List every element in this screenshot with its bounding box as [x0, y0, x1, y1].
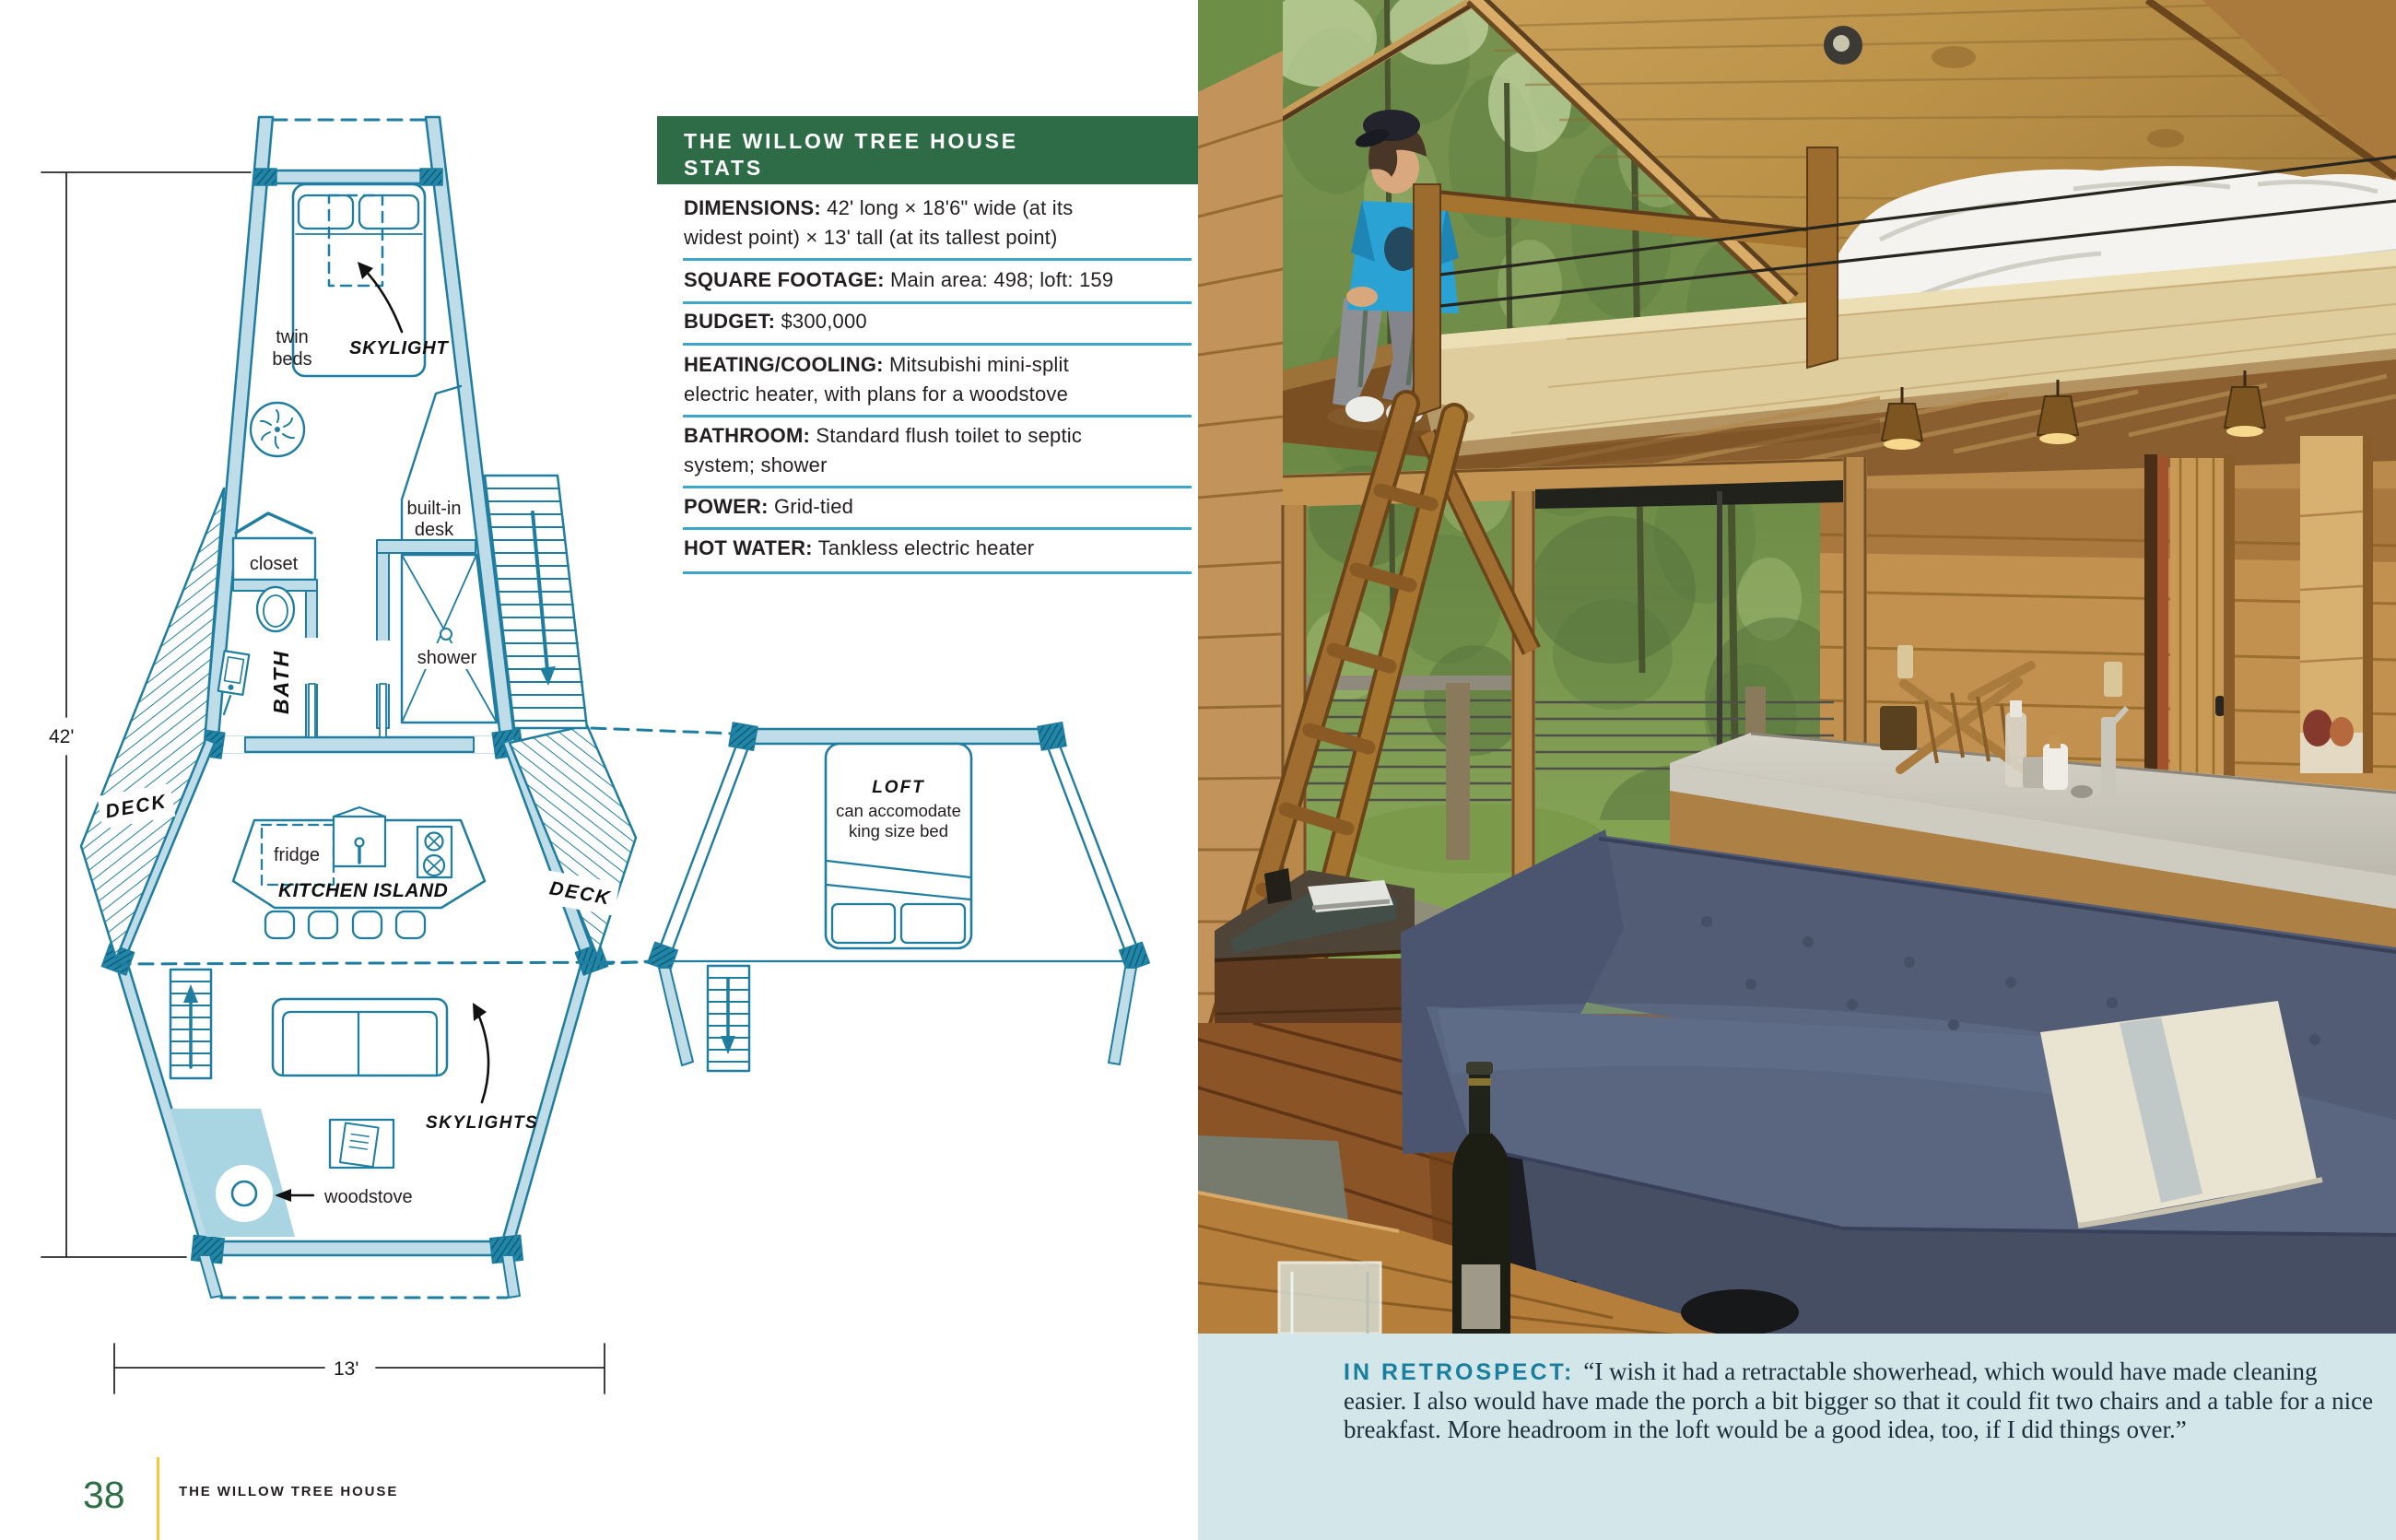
svg-text:closet: closet [250, 554, 299, 574]
svg-text:can accomodate: can accomodate [836, 801, 961, 820]
svg-text:twin: twin [276, 327, 309, 347]
svg-text:13': 13' [334, 1358, 358, 1380]
svg-text:SKYLIGHT: SKYLIGHT [349, 338, 449, 359]
svg-text:42': 42' [49, 726, 74, 747]
svg-text:built-in: built-in [407, 499, 462, 519]
svg-text:fridge: fridge [274, 845, 320, 865]
svg-text:KITCHEN ISLAND: KITCHEN ISLAND [278, 880, 448, 901]
svg-text:desk: desk [415, 520, 454, 540]
svg-text:beds: beds [272, 349, 311, 370]
svg-text:shower: shower [417, 648, 477, 668]
svg-text:king size bed: king size bed [849, 821, 948, 841]
svg-text:LOFT: LOFT [872, 778, 925, 797]
svg-text:woodstove: woodstove [323, 1187, 413, 1207]
svg-text:SKYLIGHTS: SKYLIGHTS [426, 1113, 538, 1133]
svg-text:BATH: BATH [269, 650, 293, 714]
